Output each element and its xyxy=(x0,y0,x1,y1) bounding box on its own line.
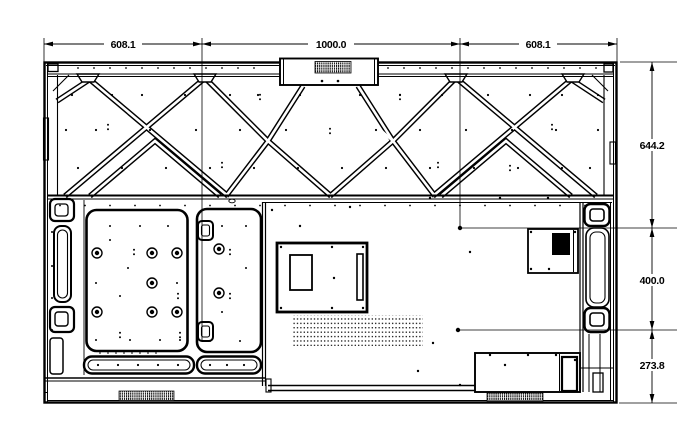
power-socket xyxy=(552,233,570,255)
mount-hole-reference-upper xyxy=(458,226,462,230)
power-inlet-box xyxy=(528,229,578,273)
technical-drawing-page: 608.1 1000.0 608.1 644.2 400.0 273.8 xyxy=(0,0,700,436)
right-rail xyxy=(580,203,614,400)
dim-label-top-center: 1000.0 xyxy=(316,39,347,51)
bottom-vent-grille-left xyxy=(119,391,174,401)
mount-hole-reference-lower xyxy=(456,328,460,332)
dim-label-top-right: 608.1 xyxy=(526,39,551,51)
top-center-module xyxy=(280,59,378,86)
top-vent-grille xyxy=(315,62,351,74)
connection-panel xyxy=(475,353,580,401)
dim-label-top-left: 608.1 xyxy=(111,39,136,51)
dim-label-right-lower: 273.8 xyxy=(640,360,665,372)
bottom-vent-grille-right xyxy=(487,393,543,401)
left-rail xyxy=(50,199,84,375)
dim-label-right-middle: 400.0 xyxy=(640,275,665,287)
bottom-handles xyxy=(84,357,261,374)
dimension-arrowheads xyxy=(44,42,654,403)
perforated-vent-grid xyxy=(292,315,423,346)
vesa-screw-bosses xyxy=(92,244,224,317)
center-module-box xyxy=(277,243,367,312)
truss-brace-section xyxy=(57,74,604,196)
dim-label-right-upper: 644.2 xyxy=(640,140,665,152)
vesa-mount-plates xyxy=(87,209,262,352)
rear-panel-dimension-drawing: 608.1 1000.0 608.1 644.2 400.0 273.8 xyxy=(0,0,700,436)
